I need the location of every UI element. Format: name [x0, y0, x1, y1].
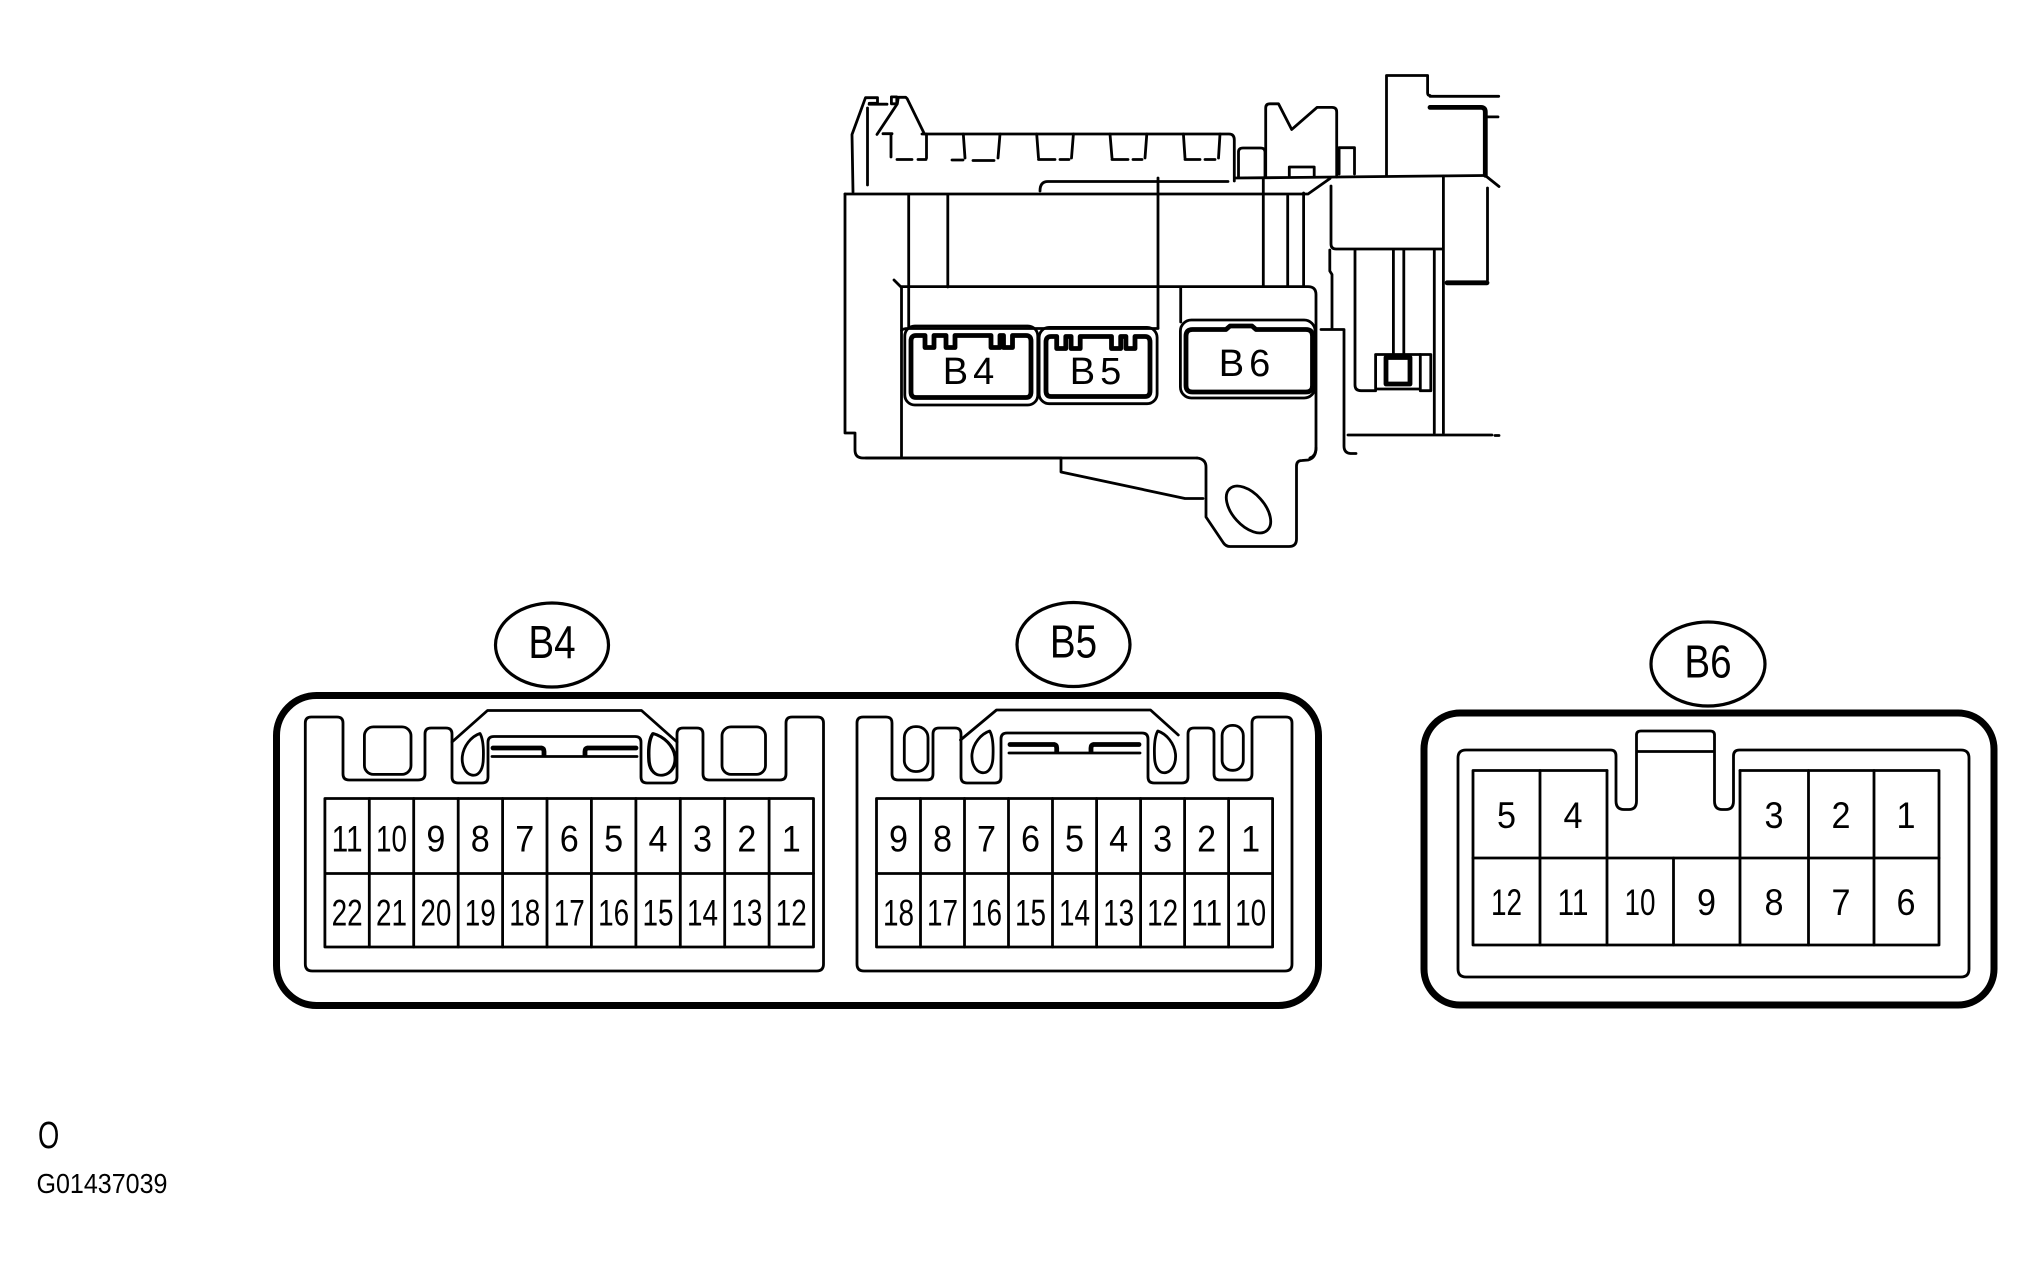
- svg-text:5: 5: [604, 819, 623, 860]
- svg-text:2: 2: [1832, 795, 1851, 836]
- svg-text:14: 14: [687, 893, 718, 934]
- svg-text:15: 15: [643, 893, 674, 934]
- svg-text:20: 20: [420, 893, 451, 934]
- svg-text:22: 22: [332, 893, 363, 934]
- svg-text:10: 10: [1235, 893, 1266, 934]
- svg-text:3: 3: [693, 819, 712, 860]
- svg-text:10: 10: [1625, 882, 1656, 923]
- svg-text:10: 10: [376, 819, 407, 860]
- svg-text:8: 8: [933, 819, 952, 860]
- svg-text:11: 11: [1558, 882, 1589, 923]
- svg-text:6: 6: [560, 819, 579, 860]
- svg-text:18: 18: [509, 893, 540, 934]
- svg-text:16: 16: [971, 893, 1002, 934]
- svg-text:4: 4: [1564, 795, 1583, 836]
- svg-text:B4: B4: [943, 351, 999, 393]
- svg-text:7: 7: [977, 819, 996, 860]
- svg-text:O: O: [38, 1115, 59, 1157]
- svg-text:19: 19: [465, 893, 496, 934]
- svg-text:7: 7: [1832, 882, 1851, 923]
- svg-text:16: 16: [598, 893, 629, 934]
- svg-text:B5: B5: [1050, 616, 1097, 667]
- svg-text:9: 9: [1697, 882, 1716, 923]
- svg-text:13: 13: [1103, 893, 1134, 934]
- svg-text:12: 12: [1147, 893, 1178, 934]
- svg-text:5: 5: [1497, 795, 1516, 836]
- svg-text:G01437039: G01437039: [37, 1168, 168, 1199]
- svg-text:17: 17: [927, 893, 958, 934]
- svg-text:B4: B4: [528, 617, 575, 668]
- svg-text:4: 4: [649, 819, 668, 860]
- svg-text:21: 21: [376, 893, 407, 934]
- svg-text:3: 3: [1153, 819, 1172, 860]
- svg-text:9: 9: [889, 819, 908, 860]
- svg-text:1: 1: [1897, 795, 1916, 836]
- svg-text:15: 15: [1015, 893, 1046, 934]
- svg-text:2: 2: [737, 819, 756, 860]
- svg-text:12: 12: [776, 893, 807, 934]
- svg-text:11: 11: [1191, 893, 1222, 934]
- svg-text:4: 4: [1109, 819, 1128, 860]
- svg-text:8: 8: [1765, 882, 1784, 923]
- svg-text:12: 12: [1491, 882, 1522, 923]
- svg-text:5: 5: [1065, 819, 1084, 860]
- svg-text:1: 1: [782, 819, 801, 860]
- svg-text:B6: B6: [1219, 343, 1275, 385]
- svg-text:8: 8: [471, 819, 490, 860]
- svg-text:6: 6: [1021, 819, 1040, 860]
- svg-text:17: 17: [554, 893, 585, 934]
- svg-text:14: 14: [1059, 893, 1090, 934]
- svg-text:6: 6: [1897, 882, 1916, 923]
- svg-text:2: 2: [1197, 819, 1216, 860]
- svg-text:B5: B5: [1070, 351, 1126, 393]
- svg-text:1: 1: [1241, 819, 1260, 860]
- svg-text:18: 18: [883, 893, 914, 934]
- svg-text:3: 3: [1765, 795, 1784, 836]
- svg-text:11: 11: [332, 819, 363, 860]
- svg-text:B6: B6: [1684, 636, 1731, 687]
- svg-text:9: 9: [426, 819, 445, 860]
- svg-text:7: 7: [515, 819, 534, 860]
- svg-text:13: 13: [731, 893, 762, 934]
